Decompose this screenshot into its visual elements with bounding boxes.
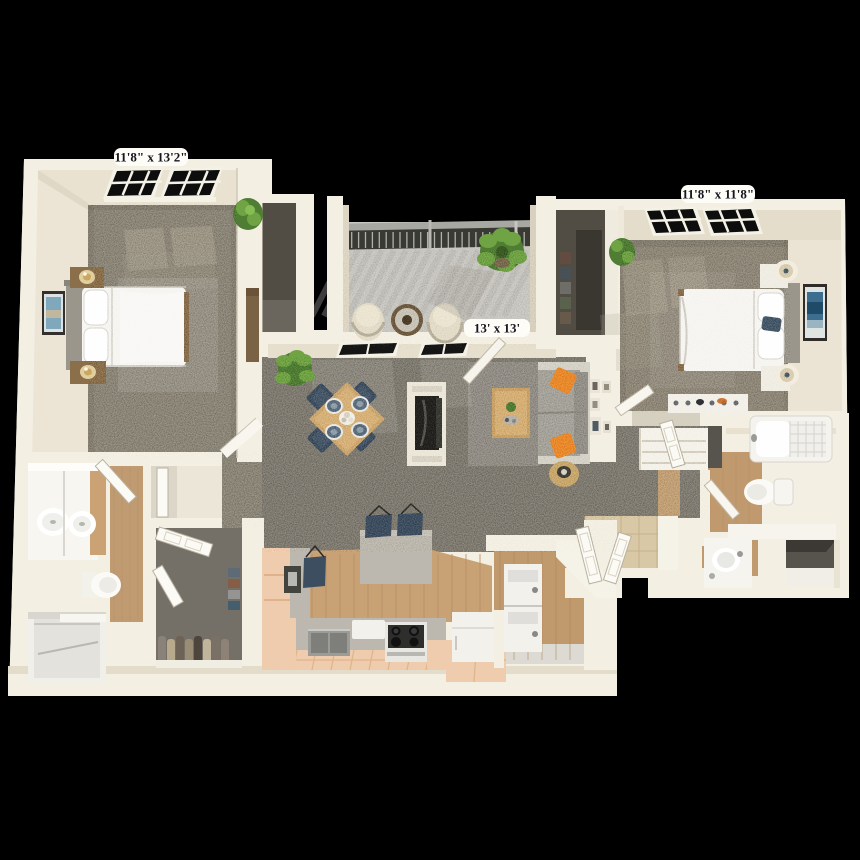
svg-text:11'8" x 11'8": 11'8" x 11'8": [682, 187, 754, 202]
svg-text:11'8" x 13'2": 11'8" x 13'2": [115, 150, 188, 165]
svg-text:13' x 13': 13' x 13': [474, 321, 520, 336]
